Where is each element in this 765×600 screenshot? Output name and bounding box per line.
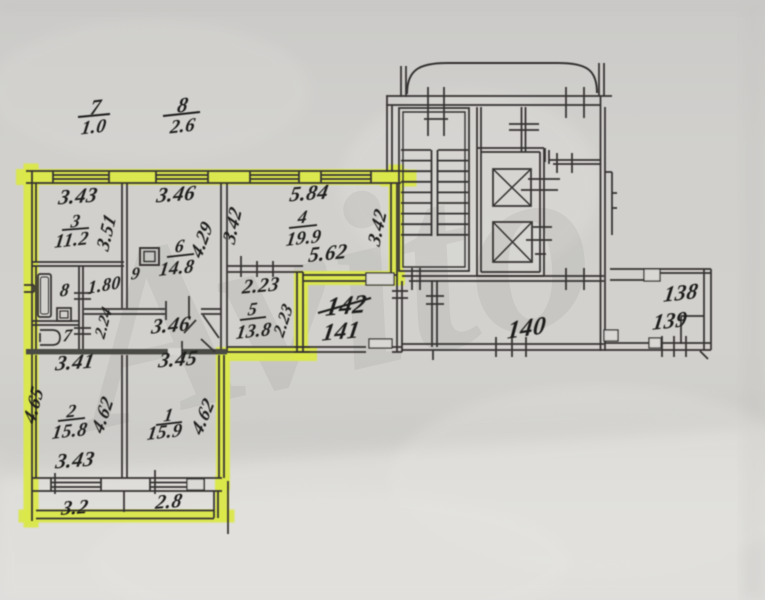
svg-text:15.9: 15.9: [146, 420, 184, 445]
svg-text:2.6: 2.6: [168, 115, 197, 139]
svg-text:11.2: 11.2: [53, 228, 90, 253]
svg-text:2.23: 2.23: [240, 273, 281, 298]
svg-text:3.2: 3.2: [59, 496, 90, 520]
svg-text:138: 138: [662, 278, 700, 307]
svg-text:3.41: 3.41: [53, 349, 97, 376]
svg-text:3.43: 3.43: [53, 447, 97, 474]
svg-text:13.8: 13.8: [235, 319, 273, 344]
svg-text:3.46: 3.46: [149, 311, 192, 339]
svg-text:5.62: 5.62: [307, 239, 349, 267]
svg-text:3.43: 3.43: [56, 183, 100, 210]
svg-text:1.0: 1.0: [80, 116, 108, 140]
svg-text:14.8: 14.8: [158, 256, 196, 281]
svg-text:141: 141: [320, 316, 362, 346]
svg-text:140: 140: [506, 311, 548, 345]
svg-text:3.46: 3.46: [154, 181, 198, 208]
svg-text:5.84: 5.84: [288, 180, 331, 207]
svg-text:139: 139: [651, 306, 689, 335]
svg-text:2.8: 2.8: [153, 490, 184, 514]
svg-text:3.45: 3.45: [156, 346, 200, 373]
svg-text:15.8: 15.8: [51, 419, 89, 444]
